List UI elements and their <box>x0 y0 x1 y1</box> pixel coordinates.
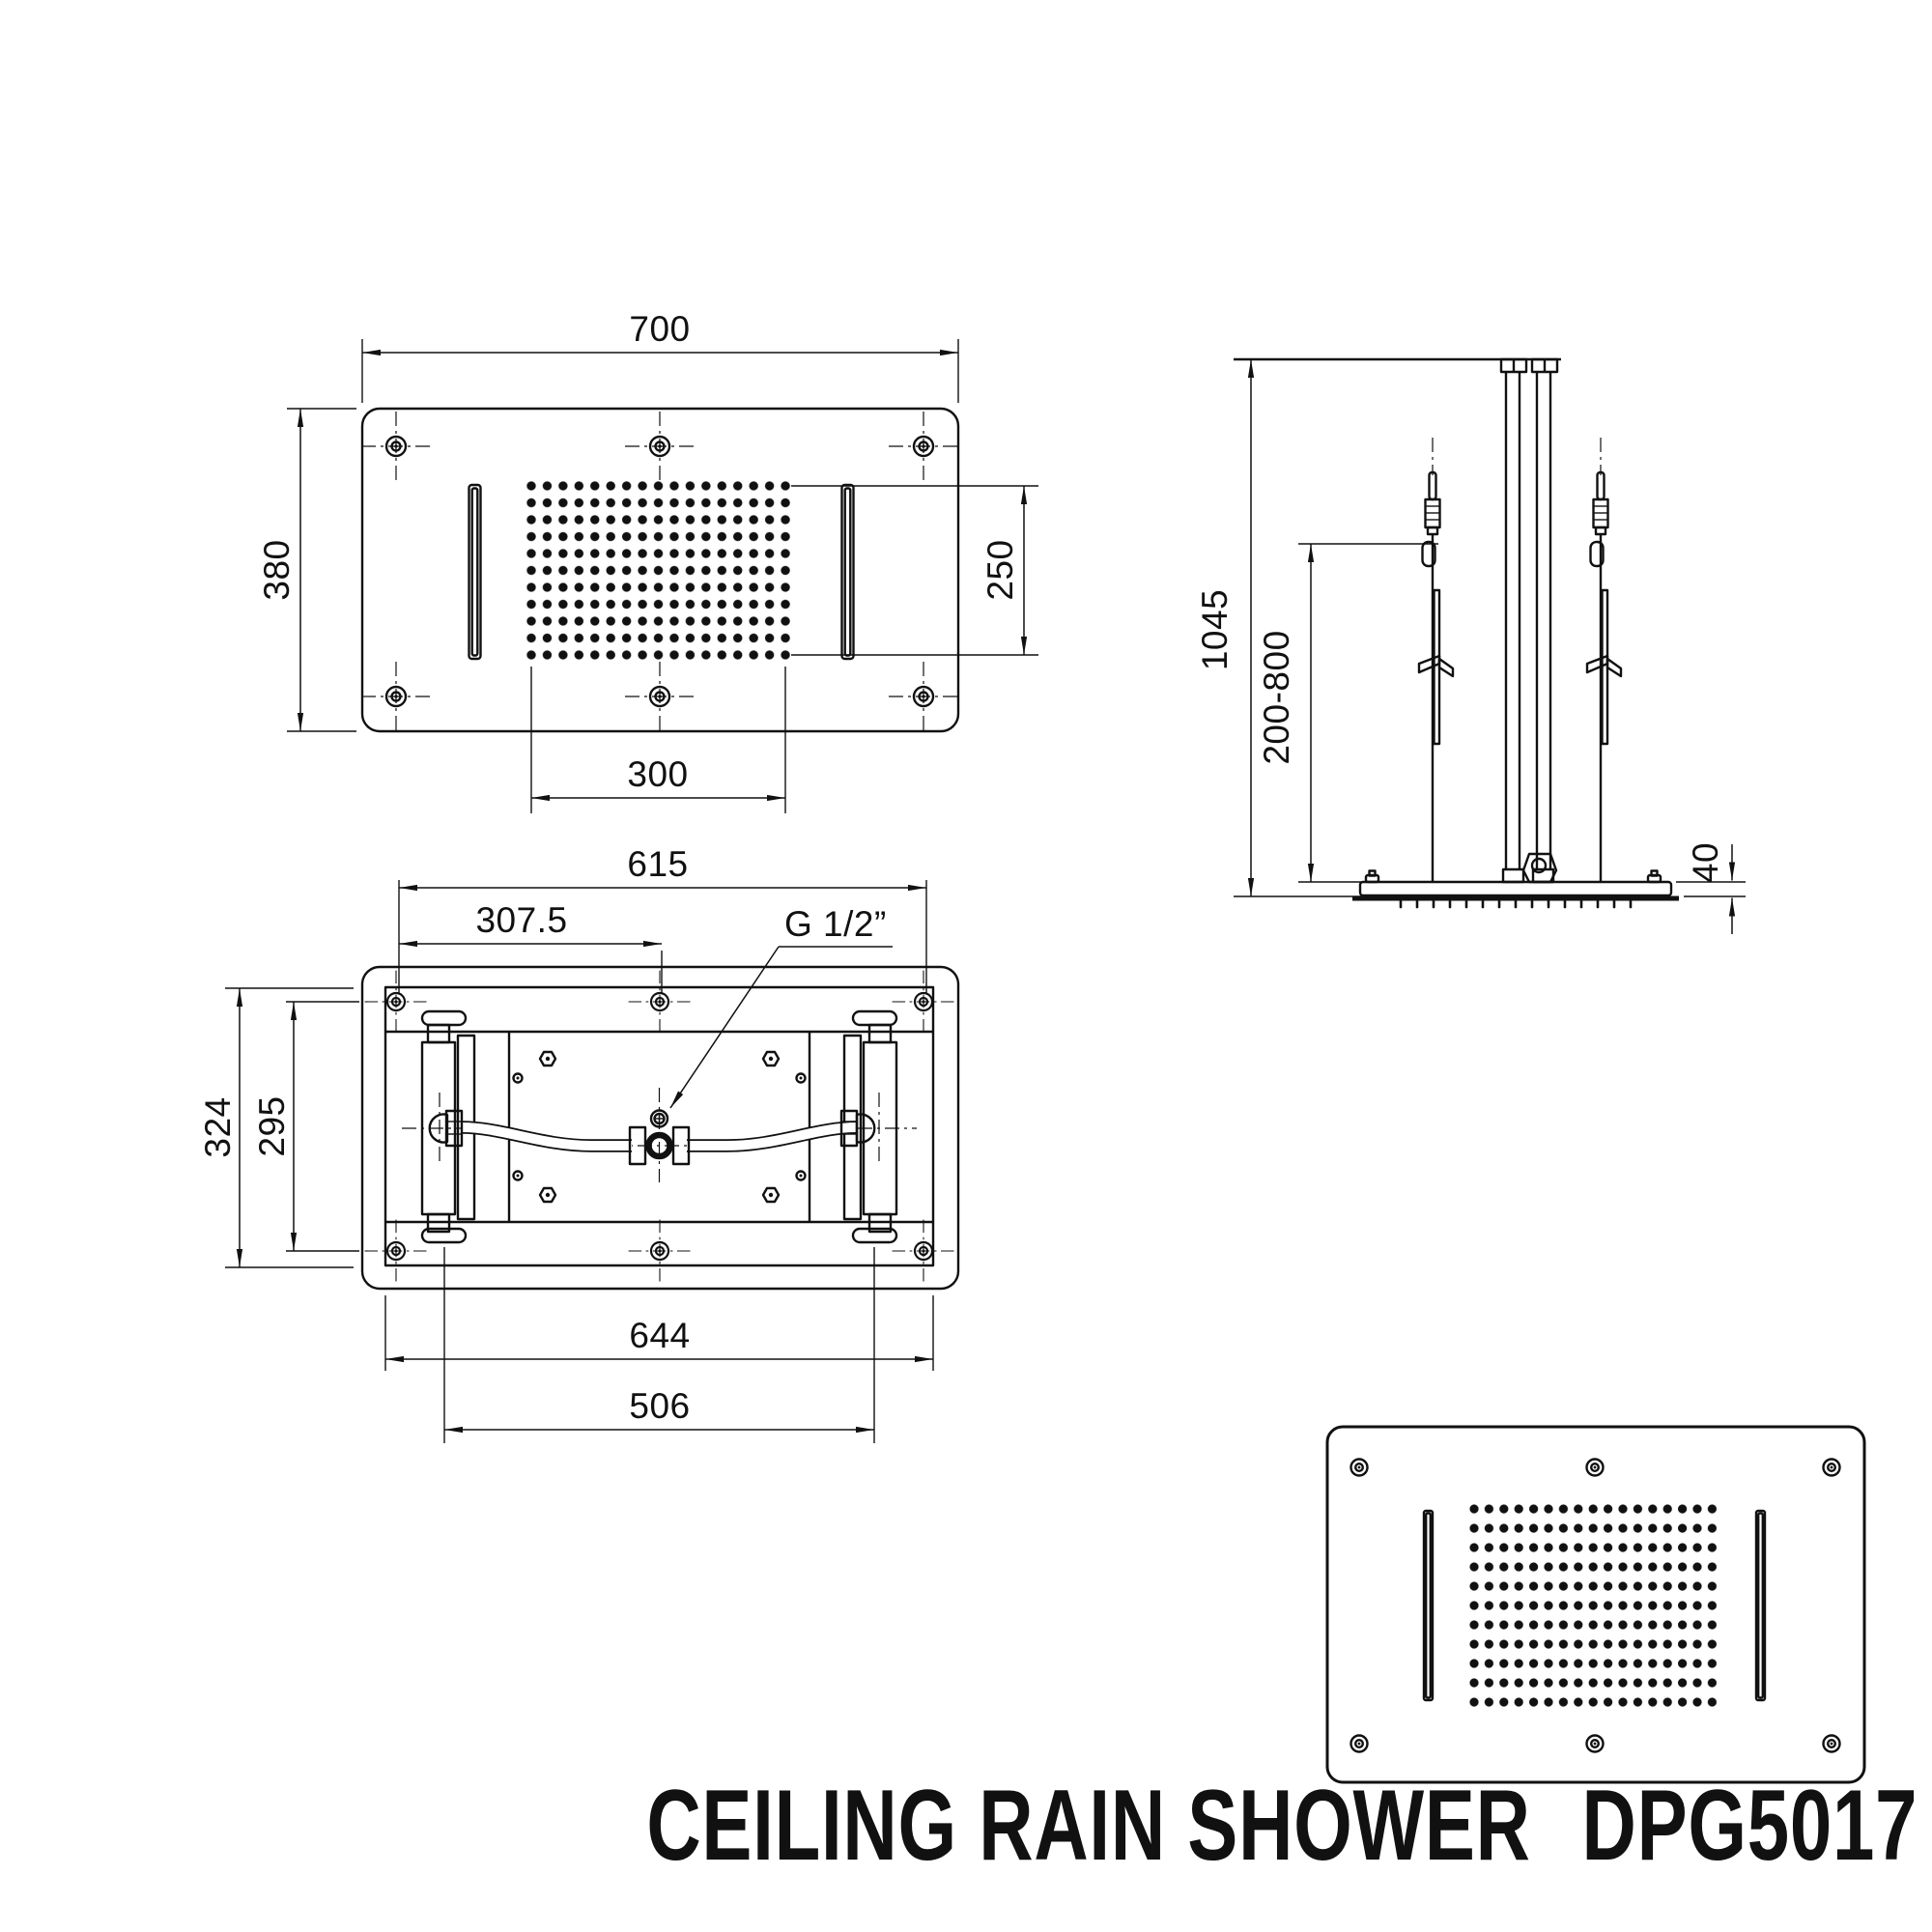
dim-front-spray-width: 300 <box>531 667 785 813</box>
plate-hole <box>797 1074 806 1083</box>
dim-label-644: 644 <box>629 1316 690 1355</box>
dim-label-324: 324 <box>198 1096 238 1157</box>
suspension-rod-right <box>1587 438 1621 882</box>
dim-label-615: 615 <box>627 844 688 884</box>
suspension-rod-left <box>1419 438 1453 882</box>
mounting-screw <box>361 662 431 731</box>
mounting-screw <box>1824 1460 1840 1476</box>
waterfall-slot-left <box>469 485 481 659</box>
supply-pipes <box>1501 359 1557 882</box>
mounting-screw <box>629 971 692 1034</box>
mounting-screw <box>893 971 955 1034</box>
dim-label-506: 506 <box>629 1386 690 1426</box>
waterfall-slot-right <box>1756 1511 1765 1700</box>
mounting-screw <box>625 662 695 731</box>
mounting-screw <box>629 1220 692 1283</box>
plate-hole <box>797 1172 806 1180</box>
dim-label-307-5: 307.5 <box>475 900 567 940</box>
spray-hole-grid <box>526 481 790 661</box>
mounting-screw <box>1587 1460 1604 1476</box>
mounting-screw <box>361 412 431 481</box>
mounting-screw <box>1351 1736 1368 1752</box>
mounting-screw <box>1824 1736 1840 1752</box>
dim-label-40: 40 <box>1686 842 1725 883</box>
plate-bolt <box>540 1188 555 1202</box>
bracket-slot <box>853 1011 896 1025</box>
dim-front-overall-height: 380 <box>257 409 356 731</box>
dim-side-thickness: 40 <box>1676 842 1746 934</box>
dim-side-overall: 1045 <box>1195 359 1361 896</box>
bracket-slot <box>422 1011 466 1025</box>
waterfall-slot-left <box>1424 1511 1433 1700</box>
technical-drawing: 700 380 250 300 <box>0 0 1932 1932</box>
dim-back-housing-width: 644 <box>385 1295 933 1371</box>
mounting-screw <box>1587 1736 1604 1752</box>
dim-side-adjustable-range: 200-800 <box>1257 544 1438 882</box>
plate-bolt <box>763 1052 779 1065</box>
mounting-screw <box>893 1220 955 1283</box>
mounting-screw <box>365 971 428 1034</box>
plate-bolt <box>540 1052 555 1065</box>
mounting-screw <box>889 662 958 731</box>
dim-back-screw-row-span: 295 <box>252 1002 359 1251</box>
front-view: 700 380 250 300 <box>257 309 1038 813</box>
side-view: 1045 200-800 40 <box>1195 359 1746 934</box>
mounting-screw <box>625 412 695 481</box>
callout-water-inlet: G 1/2” <box>670 904 893 1108</box>
spray-hole-grid <box>1469 1504 1718 1707</box>
bottom-view <box>1327 1427 1864 1782</box>
dim-label-200-800: 200-800 <box>1257 630 1296 764</box>
product-title: CEILING RAIN SHOWER <box>646 1770 1530 1881</box>
dim-label-380: 380 <box>257 539 297 600</box>
model-number: DPG5017 <box>1582 1770 1918 1881</box>
shower-head-profile <box>1352 871 1679 908</box>
plate-bolt <box>763 1188 779 1202</box>
plate-hole <box>514 1074 523 1083</box>
waterfall-slot-right <box>842 485 854 659</box>
dim-label-300: 300 <box>627 754 688 794</box>
mounting-screw <box>889 412 958 481</box>
dim-label-700: 700 <box>629 309 690 349</box>
dim-label-250: 250 <box>980 539 1020 600</box>
back-view: 615 307.5 G 1/2” 324 295 644 <box>198 844 958 1443</box>
title-block: CEILING RAIN SHOWER DPG5017 <box>646 1770 1918 1881</box>
plate-hole <box>514 1172 523 1180</box>
mounting-screw <box>1351 1460 1368 1476</box>
inlet-valve <box>630 1111 689 1165</box>
dim-label-295: 295 <box>252 1095 292 1156</box>
drawing-sheet: 700 380 250 300 <box>0 0 1932 1932</box>
dim-label-1045: 1045 <box>1195 589 1235 670</box>
dim-label-g12: G 1/2” <box>784 904 887 944</box>
nozzle-row <box>1401 901 1631 907</box>
dim-back-mounting-half-span: 307.5 <box>399 900 662 994</box>
dim-front-spray-height: 250 <box>791 486 1038 655</box>
dim-front-overall-width: 700 <box>362 309 958 403</box>
mounting-screw <box>365 1220 428 1283</box>
